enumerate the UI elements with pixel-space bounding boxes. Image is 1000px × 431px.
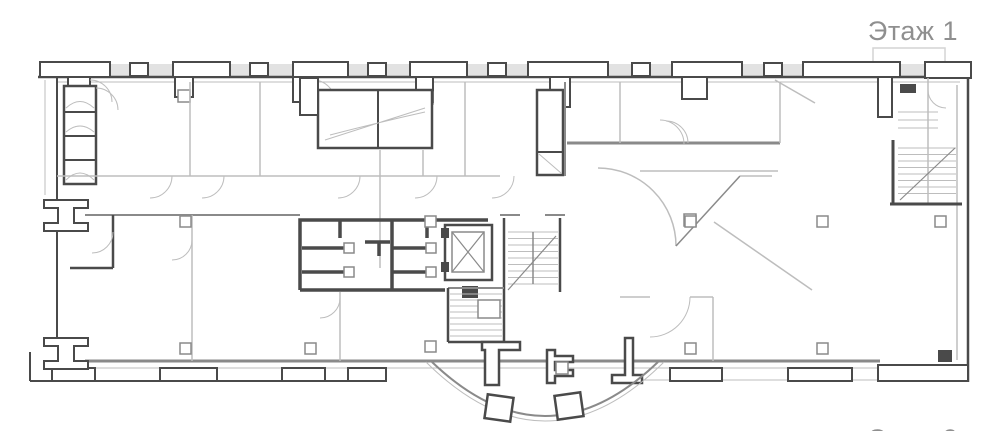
elevator-shaft [441, 225, 492, 280]
left-wall-pilasters [44, 200, 88, 369]
diagonal-walls [598, 168, 812, 290]
floor-2-label: Этаж 2 [868, 424, 958, 431]
left-stairwell [64, 86, 118, 184]
floor-1-label: Этаж 1 [868, 16, 958, 46]
top-wall-stems [68, 77, 892, 117]
floor-plan-page: Этаж 1 Этаж 2 [0, 0, 1000, 431]
interior-walls-right [567, 78, 946, 361]
structural-columns [180, 216, 946, 354]
vertical-shaft [537, 82, 565, 176]
floor-plan-drawing: Этаж 1 Этаж 2 [0, 0, 1000, 431]
top-pilasters [40, 62, 971, 78]
top-center-block [300, 78, 432, 148]
right-staircase [890, 84, 962, 205]
